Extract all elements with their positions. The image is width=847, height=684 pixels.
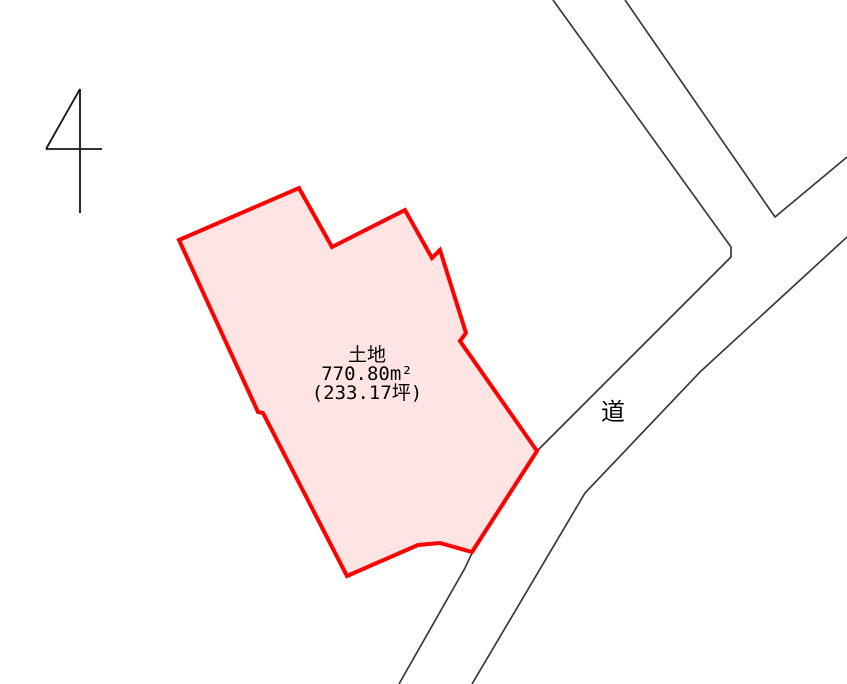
- road-edge-north-east: [625, 0, 847, 217]
- road-edge-south-west: [399, 553, 472, 684]
- north-arrow: [46, 89, 102, 213]
- plot-canvas: 土地 770.80m² (233.17坪) 道: [0, 0, 847, 684]
- land-survey-drawing: 土地 770.80m² (233.17坪) 道: [0, 0, 847, 684]
- road-boundaries: [399, 0, 847, 684]
- north-arrow-diagonal-line: [46, 89, 80, 149]
- road-edge-north-west: [537, 0, 731, 451]
- road-label: 道: [601, 398, 625, 426]
- parcel-label-area-tsubo: (233.17坪): [312, 382, 423, 404]
